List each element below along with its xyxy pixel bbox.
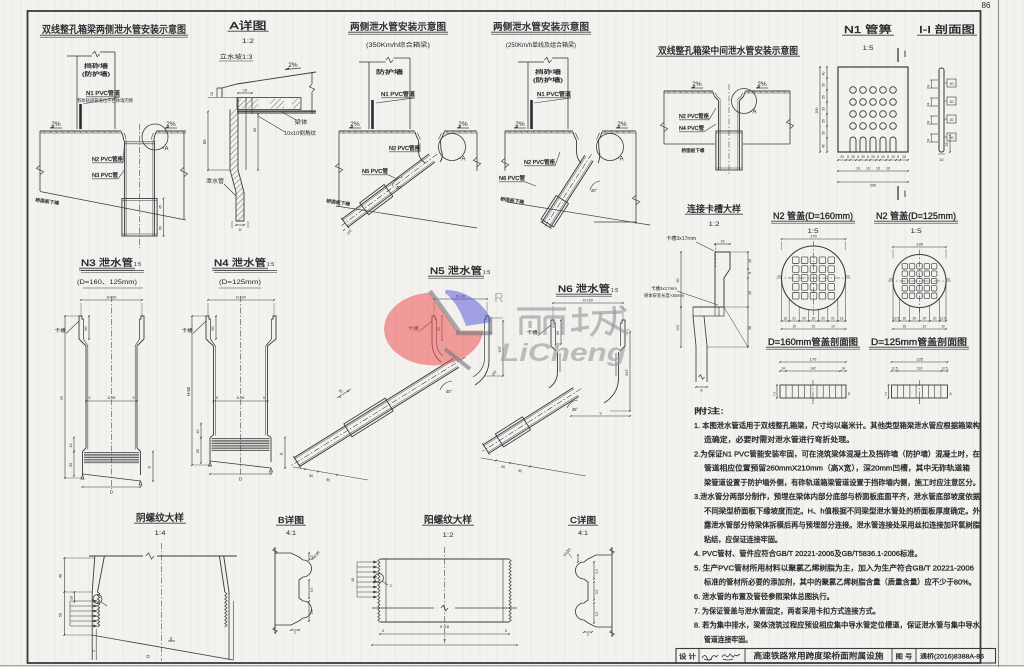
svg-text:LiCheng: LiCheng bbox=[500, 339, 626, 367]
svg-text:20: 20 bbox=[821, 317, 825, 321]
svg-text:65: 65 bbox=[202, 139, 207, 144]
svg-text:40: 40 bbox=[196, 430, 200, 434]
svg-text:高速铁路常用跨度梁桥面附属设施: 高速铁路常用跨度梁桥面附属设施 bbox=[754, 651, 884, 661]
svg-text:200: 200 bbox=[870, 184, 876, 188]
svg-text:8: 8 bbox=[857, 155, 859, 159]
svg-text:10: 10 bbox=[886, 167, 890, 171]
svg-text:38: 38 bbox=[748, 326, 752, 330]
svg-text:12.5: 12.5 bbox=[941, 367, 947, 371]
svg-text:24: 24 bbox=[927, 103, 931, 107]
svg-text:5. 生产PVC管材所用材料以聚氯乙烯树脂为主，加入为生产符: 5. 生产PVC管材所用材料以聚氯乙烯树脂为主，加入为生产符合GB/T 2022… bbox=[694, 562, 974, 572]
svg-text:不同梁型桥面板下缘坡度而定。H、h值根据不同梁型泄水管处的桥: 不同梁型桥面板下缘坡度而定。H、h值根据不同梁型泄水管处的桥面板厚度确定。外 bbox=[704, 505, 980, 515]
svg-text:两侧泄水管安装示意图: 两侧泄水管安装示意图 bbox=[493, 21, 589, 33]
svg-text:管道连接牢固。: 管道连接牢固。 bbox=[704, 634, 752, 644]
svg-text:D: D bbox=[239, 228, 242, 232]
svg-text:1:4: 1:4 bbox=[155, 530, 166, 537]
svg-text:桥面板下缘: 桥面板下缘 bbox=[682, 147, 705, 154]
svg-text:18: 18 bbox=[748, 291, 752, 295]
svg-text:30: 30 bbox=[309, 474, 314, 479]
svg-text:立水坡1:3: 立水坡1:3 bbox=[220, 53, 254, 61]
svg-text:阴螺纹大样: 阴螺纹大样 bbox=[136, 512, 184, 524]
svg-text:1:5: 1:5 bbox=[483, 270, 491, 276]
svg-text:1:5: 1:5 bbox=[267, 262, 275, 268]
svg-text:8: 8 bbox=[877, 155, 879, 159]
svg-text:110: 110 bbox=[917, 367, 923, 371]
svg-text:20: 20 bbox=[802, 317, 806, 321]
svg-text:N2 管盖(D=160mm): N2 管盖(D=160mm) bbox=[773, 210, 853, 221]
svg-text:3.泄水管分两部分制作，预埋在梁体内部分底部与桥面板底面平齐: 3.泄水管分两部分制作，预埋在梁体内部分底部与桥面板底面平齐，泄水管底部坡度依据 bbox=[694, 491, 980, 501]
svg-text:15: 15 bbox=[945, 143, 949, 147]
svg-text:50: 50 bbox=[159, 226, 163, 230]
svg-text:泄水管: 泄水管 bbox=[206, 177, 224, 185]
svg-text:20: 20 bbox=[933, 317, 937, 321]
svg-text:10: 10 bbox=[792, 325, 796, 329]
svg-text:(250Km/h单线及组合箱梁): (250Km/h单线及组合箱梁) bbox=[506, 41, 576, 49]
svg-text:24: 24 bbox=[927, 139, 931, 143]
svg-text:135: 135 bbox=[916, 242, 923, 247]
svg-text:20: 20 bbox=[840, 155, 844, 159]
svg-text:防护墙: 防护墙 bbox=[376, 68, 404, 76]
svg-text:4:1: 4:1 bbox=[286, 530, 296, 537]
svg-text:24: 24 bbox=[927, 121, 931, 125]
svg-text:40°: 40° bbox=[446, 389, 453, 394]
svg-text:8: 8 bbox=[847, 155, 849, 159]
svg-text:10: 10 bbox=[923, 325, 927, 329]
svg-text:55: 55 bbox=[196, 449, 200, 453]
svg-text:D-9δ: D-9δ bbox=[237, 396, 245, 400]
svg-text:40°: 40° bbox=[396, 185, 403, 190]
svg-text:21: 21 bbox=[792, 317, 796, 321]
svg-text:3.5: 3.5 bbox=[595, 590, 599, 595]
svg-text:45: 45 bbox=[518, 469, 523, 474]
svg-text:15: 15 bbox=[721, 240, 725, 244]
svg-text:55: 55 bbox=[69, 463, 73, 467]
svg-text:A详图: A详图 bbox=[230, 19, 267, 32]
svg-text:双线整孔箱梁中间泄水管安装示意图: 双线整孔箱梁中间泄水管安装示意图 bbox=[658, 45, 798, 57]
svg-text:8: 8 bbox=[701, 389, 703, 393]
svg-text:20: 20 bbox=[891, 155, 895, 159]
svg-text:10: 10 bbox=[866, 167, 870, 171]
svg-text:N4 PVC管: N4 PVC管 bbox=[679, 124, 704, 132]
svg-text:7.5: 7.5 bbox=[773, 392, 777, 397]
svg-text:6. 泄水管的布置及管径参照梁体总图执行。: 6. 泄水管的布置及管径参照梁体总图执行。 bbox=[694, 591, 834, 601]
svg-text:200: 200 bbox=[815, 108, 819, 114]
svg-text:D: D bbox=[110, 490, 113, 495]
svg-text:δ: δ bbox=[216, 396, 218, 400]
svg-text:D-9δ: D-9δ bbox=[108, 396, 116, 400]
svg-text:N1 PVC管道: N1 PVC管道 bbox=[86, 89, 120, 97]
svg-text:48: 48 bbox=[351, 578, 355, 582]
svg-text:图 号: 图 号 bbox=[896, 653, 914, 661]
svg-text:8: 8 bbox=[887, 155, 889, 159]
svg-text:12.5: 12.5 bbox=[891, 367, 897, 371]
svg-text:10: 10 bbox=[831, 325, 835, 329]
svg-text:I-I 剖面图: I-I 剖面图 bbox=[919, 23, 975, 36]
svg-text:1:2: 1:2 bbox=[443, 532, 454, 539]
svg-text:7.5: 7.5 bbox=[884, 392, 888, 397]
svg-text:40°: 40° bbox=[591, 188, 598, 193]
svg-text:60: 60 bbox=[676, 279, 680, 283]
svg-text:20: 20 bbox=[903, 317, 907, 321]
svg-text:D+20: D+20 bbox=[583, 298, 593, 303]
svg-text:粘结，应保证连接牢固。: 粘结，应保证连接牢固。 bbox=[704, 534, 782, 544]
svg-text:N1 管箅: N1 管箅 bbox=[844, 23, 892, 36]
svg-text:A: A bbox=[619, 157, 623, 163]
svg-text:N3 PVC管: N3 PVC管 bbox=[92, 171, 118, 179]
svg-text:B详图: B详图 bbox=[278, 515, 304, 525]
svg-text:D+20: D+20 bbox=[236, 295, 246, 300]
svg-text:两侧泄水管安装示意图: 两侧泄水管安装示意图 bbox=[350, 21, 446, 33]
svg-text:48: 48 bbox=[58, 573, 63, 578]
svg-text:20: 20 bbox=[923, 317, 927, 321]
svg-text:35: 35 bbox=[822, 95, 826, 99]
svg-text:21: 21 bbox=[831, 317, 835, 321]
svg-text:A: A bbox=[752, 110, 756, 116]
svg-text:2%: 2% bbox=[288, 62, 298, 69]
svg-text:露泄水管部分待梁体拆模后再与预埋部分连接。泄水管连接处采用丝: 露泄水管部分待梁体拆模后再与预埋部分连接。泄水管连接处采用丝扣连接加环氧树脂 bbox=[704, 520, 980, 530]
svg-text:有砟轨道管道位于挡砟墙内侧: 有砟轨道管道位于挡砟墙内侧 bbox=[77, 97, 133, 104]
svg-text:D+20: D+20 bbox=[107, 295, 117, 300]
svg-text:59: 59 bbox=[58, 612, 63, 617]
svg-text:24: 24 bbox=[927, 85, 931, 89]
svg-text:通桥(2016)8388A-86: 通桥(2016)8388A-86 bbox=[920, 653, 985, 661]
svg-text:40: 40 bbox=[822, 144, 826, 148]
svg-text:38: 38 bbox=[949, 392, 953, 396]
svg-text:H: H bbox=[59, 396, 64, 399]
svg-text:8. 若为集中排水，梁体浇筑过程应预设相应集中导水管定位槽道: 8. 若为集中排水，梁体浇筑过程应预设相应集中导水管定位槽道，保证泄水管与集中导… bbox=[694, 620, 980, 630]
svg-text:0~18: 0~18 bbox=[440, 624, 450, 629]
svg-text:(防护墙): (防护墙) bbox=[533, 76, 563, 84]
svg-text:N2 PVC管座: N2 PVC管座 bbox=[679, 112, 709, 120]
svg-text:N2 PVC管座: N2 PVC管座 bbox=[389, 144, 420, 152]
svg-text:N1 PVC管道: N1 PVC管道 bbox=[537, 90, 571, 98]
svg-text:16: 16 bbox=[840, 317, 844, 321]
svg-text:45: 45 bbox=[326, 478, 331, 483]
svg-text:10: 10 bbox=[856, 167, 860, 171]
svg-text:挡砟墙: 挡砟墙 bbox=[84, 62, 109, 70]
svg-text:R: R bbox=[494, 290, 503, 305]
svg-text:337: 337 bbox=[624, 368, 629, 375]
svg-text:1:5: 1:5 bbox=[134, 262, 142, 268]
svg-text:N2 管盖(D=125mm): N2 管盖(D=125mm) bbox=[876, 210, 956, 221]
svg-text:14: 14 bbox=[781, 367, 785, 371]
svg-text:N6 PVC管: N6 PVC管 bbox=[499, 174, 525, 182]
svg-text:N2 PVC管座: N2 PVC管座 bbox=[92, 155, 123, 163]
svg-text:连接卡槽大样: 连接卡槽大样 bbox=[687, 203, 741, 214]
svg-text:3.5: 3.5 bbox=[310, 588, 314, 593]
svg-text:梁体: 梁体 bbox=[295, 118, 308, 126]
svg-text:C详图: C详图 bbox=[570, 515, 596, 525]
svg-text:60: 60 bbox=[556, 331, 560, 335]
svg-text:2.5: 2.5 bbox=[310, 610, 314, 615]
svg-text:8: 8 bbox=[867, 155, 869, 159]
svg-text:N5 PVC管: N5 PVC管 bbox=[362, 167, 388, 175]
svg-text:35: 35 bbox=[822, 107, 826, 111]
svg-text:N3 泄水管: N3 泄水管 bbox=[81, 257, 133, 269]
svg-text:10: 10 bbox=[903, 325, 907, 329]
svg-text:1:5: 1:5 bbox=[863, 45, 874, 52]
svg-text:20: 20 bbox=[950, 100, 954, 104]
svg-text:2: 2 bbox=[92, 650, 96, 652]
svg-text:20: 20 bbox=[950, 82, 954, 86]
svg-text:20: 20 bbox=[812, 317, 816, 321]
svg-text:20: 20 bbox=[871, 155, 875, 159]
svg-text:60: 60 bbox=[211, 327, 215, 331]
svg-text:20: 20 bbox=[881, 155, 885, 159]
svg-text:1:2: 1:2 bbox=[242, 38, 254, 45]
svg-text:170: 170 bbox=[810, 234, 817, 239]
svg-text:D=125mm管盖剖面图: D=125mm管盖剖面图 bbox=[871, 336, 967, 347]
svg-text:D: D bbox=[239, 477, 242, 482]
svg-text:1:5: 1:5 bbox=[911, 228, 923, 235]
svg-text:10: 10 bbox=[70, 596, 74, 600]
svg-text:(防护墙): (防护墙) bbox=[82, 70, 110, 78]
svg-text:60: 60 bbox=[253, 128, 257, 132]
svg-text:C: C bbox=[390, 583, 393, 588]
svg-text:12.5: 12.5 bbox=[893, 317, 899, 321]
svg-text:10: 10 bbox=[210, 92, 214, 96]
svg-text:卡槽3x17mm: 卡槽3x17mm bbox=[666, 234, 696, 242]
svg-text:60: 60 bbox=[84, 327, 88, 331]
svg-text:20: 20 bbox=[950, 118, 954, 122]
svg-text:35: 35 bbox=[822, 119, 826, 123]
svg-text:103: 103 bbox=[676, 325, 680, 331]
svg-text:8: 8 bbox=[505, 629, 507, 633]
svg-text:30: 30 bbox=[501, 465, 506, 470]
svg-text:9: 9 bbox=[600, 412, 602, 416]
svg-text:170: 170 bbox=[810, 357, 817, 362]
svg-text:H-50: H-50 bbox=[186, 386, 191, 396]
svg-text:卡槽3x17mm: 卡槽3x17mm bbox=[651, 285, 677, 292]
svg-text:卡槽: 卡槽 bbox=[55, 327, 66, 334]
svg-text:135: 135 bbox=[916, 357, 923, 362]
svg-text:2.为保证N1 PVC管能安装牢固，可在浇筑梁体混凝土及挡砟: 2.为保证N1 PVC管能安装牢固，可在浇筑梁体混凝土及挡砟墙（防护墙）混凝土时… bbox=[694, 448, 980, 458]
svg-text:标准的管材所必要的添加剂，其中的聚氯乙烯树脂含量（质量含量）: 标准的管材所必要的添加剂，其中的聚氯乙烯树脂含量（质量含量）应不少于80%。 bbox=[704, 577, 976, 587]
svg-text:86: 86 bbox=[982, 1, 991, 10]
svg-text:16: 16 bbox=[784, 317, 788, 321]
svg-text:38: 38 bbox=[847, 392, 851, 396]
svg-text:40: 40 bbox=[69, 444, 73, 448]
svg-text:14: 14 bbox=[841, 367, 845, 371]
svg-text:10: 10 bbox=[812, 325, 816, 329]
svg-text:(350Km/h综合箱梁): (350Km/h综合箱梁) bbox=[366, 41, 430, 49]
svg-text:卡槽: 卡槽 bbox=[527, 329, 538, 336]
svg-text:N6 泄水管: N6 泄水管 bbox=[558, 283, 610, 295]
svg-text:管道相应位置预留260mmX210mm（高X宽），深20mm: 管道相应位置预留260mmX210mm（高X宽），深20mm凹槽，其中无砟轨道箱 bbox=[704, 463, 970, 473]
svg-text:20: 20 bbox=[861, 155, 865, 159]
svg-text:N2 PVC管座: N2 PVC管座 bbox=[524, 158, 555, 166]
svg-text:造确定，必要时需对泄水管进行弯折处理。: 造确定，必要时需对泄水管进行弯折处理。 bbox=[704, 434, 854, 444]
svg-text:2: 2 bbox=[294, 631, 296, 635]
svg-text:35: 35 bbox=[822, 131, 826, 135]
svg-text:梁管道设置于防护墙外侧，有砟轨道箱梁管道设置于挡砟墙内侧，施: 梁管道设置于防护墙外侧，有砟轨道箱梁管道设置于挡砟墙内侧，施工时应注意区分。 bbox=[704, 477, 980, 487]
svg-text:10: 10 bbox=[876, 167, 880, 171]
svg-text:梁体安装长度>35mm: 梁体安装长度>35mm bbox=[644, 292, 684, 299]
svg-text:N1 PVC管道: N1 PVC管道 bbox=[381, 90, 415, 98]
svg-text:7. 为保证管盖与泄水管固定，两者采用卡扣方式连接方式。: 7. 为保证管盖与泄水管固定，两者采用卡扣方式连接方式。 bbox=[694, 605, 880, 615]
svg-text:20: 20 bbox=[902, 155, 906, 159]
svg-text:1:5: 1:5 bbox=[611, 288, 619, 294]
svg-text:δ: δ bbox=[263, 396, 265, 400]
svg-text:2.5: 2.5 bbox=[595, 569, 599, 574]
svg-text:挡砟墙: 挡砟墙 bbox=[535, 68, 562, 76]
svg-text:4:1: 4:1 bbox=[578, 530, 588, 537]
svg-text:设 计: 设 计 bbox=[679, 652, 697, 661]
svg-text:20: 20 bbox=[913, 317, 917, 321]
svg-text:1:2: 1:2 bbox=[709, 221, 720, 228]
svg-text:附注:: 附注: bbox=[694, 406, 724, 416]
svg-text:45: 45 bbox=[159, 205, 163, 209]
svg-text:A: A bbox=[164, 147, 168, 153]
svg-text:卡槽: 卡槽 bbox=[182, 327, 193, 334]
svg-text:45°: 45° bbox=[572, 407, 579, 412]
svg-text:8: 8 bbox=[897, 155, 899, 159]
svg-text:12.5: 12.5 bbox=[940, 317, 946, 321]
svg-text:18: 18 bbox=[748, 259, 752, 263]
svg-text:35: 35 bbox=[822, 83, 826, 87]
svg-text:A: A bbox=[461, 157, 465, 163]
svg-text:10: 10 bbox=[940, 158, 944, 162]
svg-text:40: 40 bbox=[822, 72, 826, 76]
svg-text:阳螺纹大样: 阳螺纹大样 bbox=[424, 514, 472, 526]
svg-text:10: 10 bbox=[941, 325, 945, 329]
svg-text:8: 8 bbox=[382, 629, 384, 633]
svg-text:20: 20 bbox=[851, 155, 855, 159]
svg-text:2.5: 2.5 bbox=[595, 612, 599, 617]
svg-text:(D=160、125mm): (D=160、125mm) bbox=[77, 279, 137, 286]
svg-text:双线整孔箱梁两侧泄水管安装示意图: 双线整孔箱梁两侧泄水管安装示意图 bbox=[42, 23, 186, 36]
svg-text:D=160mm管盖剖面图: D=160mm管盖剖面图 bbox=[768, 336, 858, 347]
svg-text:10x10倒角纹: 10x10倒角纹 bbox=[284, 129, 316, 137]
svg-text:δ: δ bbox=[88, 396, 90, 400]
svg-text:15: 15 bbox=[243, 89, 247, 93]
svg-text:I: I bbox=[904, 49, 907, 59]
svg-text:I: I bbox=[904, 189, 907, 199]
svg-text:1. 本图泄水管适用于双线整孔箱梁，尺寸均以毫米计。其他类型: 1. 本图泄水管适用于双线整孔箱梁，尺寸均以毫米计。其他类型箱梁泄水管应根据箱梁… bbox=[694, 420, 980, 430]
svg-text:(D=125mm): (D=125mm) bbox=[219, 279, 261, 286]
svg-text:4. PVC管材、管件应符合GB/T 20221-2006及: 4. PVC管材、管件应符合GB/T 20221-2006及GB/T5836.1… bbox=[694, 548, 922, 558]
svg-text:2: 2 bbox=[587, 633, 589, 637]
svg-text:N5 泄水管: N5 泄水管 bbox=[430, 265, 482, 277]
svg-text:N4 泄水管: N4 泄水管 bbox=[214, 257, 266, 269]
svg-text:142: 142 bbox=[810, 367, 816, 371]
svg-text:δ: δ bbox=[132, 396, 134, 400]
svg-text:8: 8 bbox=[748, 272, 752, 274]
